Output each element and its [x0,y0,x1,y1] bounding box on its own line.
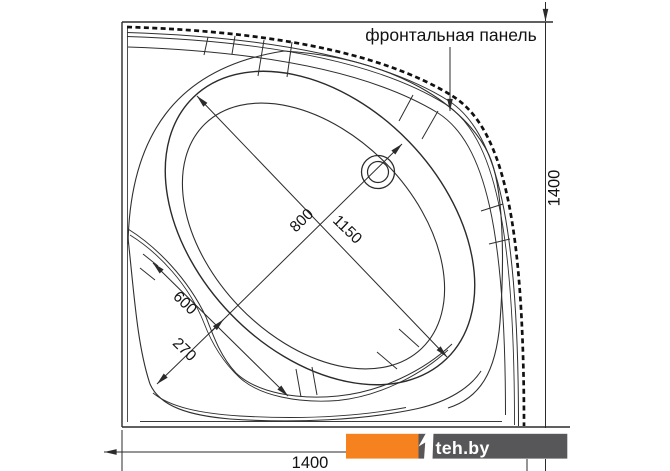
bathtub-technical-drawing: фронтальная панель 1400 1400 800 1150 60… [0,0,670,471]
dim-width-label: 1400 [292,454,329,471]
dim-depth-label: 1400 [546,170,564,207]
drawing-canvas: фронтальная панель 1400 1400 800 1150 60… [0,0,670,471]
teh-by-watermark: teh.by [346,433,567,460]
watermark-orange-block [346,434,419,459]
panel-annotation-label: фронтальная панель [365,25,537,45]
watermark-label: teh.by [436,438,490,458]
